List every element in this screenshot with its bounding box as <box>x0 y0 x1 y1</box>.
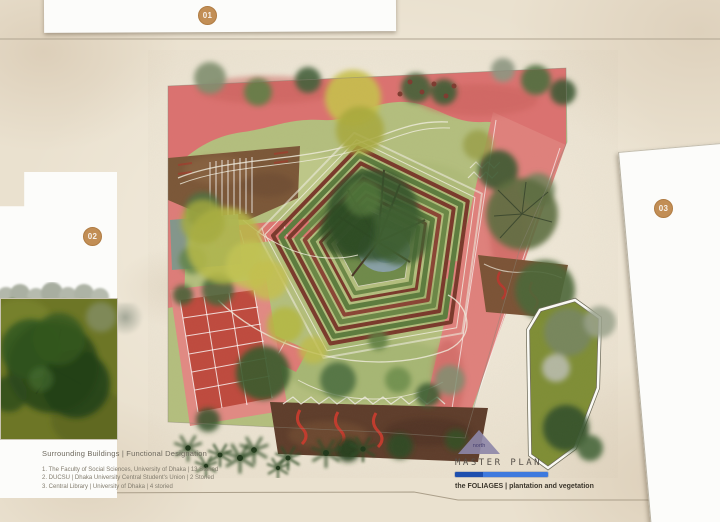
plan-title: MASTER PLAN <box>455 458 542 468</box>
legend-item-2: 2. DUCSU | Dhaka University Central Stud… <box>42 474 218 482</box>
presentation-board: 01 02 03 Surrounding Buildings | Functio… <box>0 0 720 522</box>
plan-subtitle: the FOLIAGES | plantation and vegetation <box>455 483 594 490</box>
surrounding-buildings-legend: Surrounding Buildings | Functional Desig… <box>42 449 218 491</box>
scale-bar <box>455 472 548 477</box>
badge-02: 02 <box>83 227 102 246</box>
paper-grain-overlay <box>148 50 618 478</box>
legend-list: 1. The Faculty of Social Sciences, Unive… <box>42 466 218 491</box>
legend-item-1: 1. The Faculty of Social Sciences, Unive… <box>42 466 218 474</box>
badge-03: 03 <box>654 199 673 218</box>
right-panel <box>618 136 720 522</box>
badge-01: 01 <box>198 6 217 25</box>
legend-heading: Surrounding Buildings | Functional Desig… <box>42 449 218 458</box>
master-plan-drawing <box>148 50 618 478</box>
north-label: north <box>458 443 500 449</box>
top-rule <box>0 33 720 47</box>
top-panel <box>44 0 396 33</box>
tree-top-view-image <box>0 298 118 440</box>
north-arrow-icon <box>458 430 500 454</box>
legend-item-3: 3. Central Library | University of Dhaka… <box>42 483 218 491</box>
